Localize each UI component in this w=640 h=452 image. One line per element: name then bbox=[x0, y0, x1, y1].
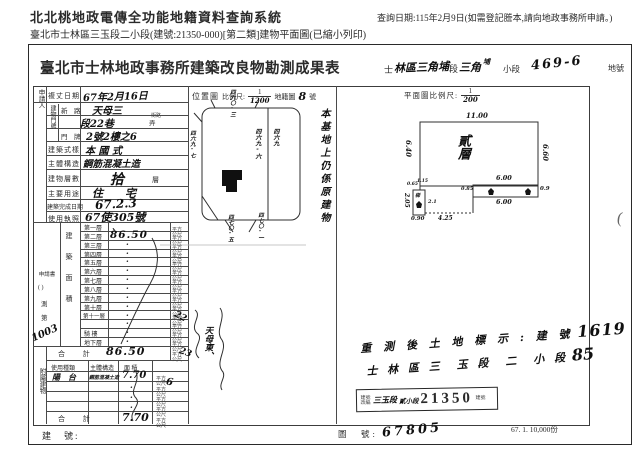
dim-strip-top: 6.00 bbox=[496, 174, 512, 182]
document-viewer-page: 北北桃地政電傳全功能地籍資料查詢系統 查詢日期:115年2月9日(如需登記謄本,… bbox=[0, 0, 640, 452]
dim-balcony-height: 2.05 bbox=[403, 193, 410, 213]
dim-strip-left: 0.85 bbox=[461, 186, 473, 192]
resurvey-lot-no: 85 bbox=[571, 344, 595, 365]
dim-strip-right: 0.9 bbox=[540, 186, 550, 192]
floor-plan-floor-label: 貳層 bbox=[453, 134, 472, 172]
dim-mid: 2.1 bbox=[428, 199, 437, 205]
dim-dotted: 4.25 bbox=[438, 215, 453, 222]
stamp-suffix: 建號 bbox=[475, 396, 486, 401]
lot-label-bottom-left: 四七〇-五 bbox=[226, 214, 234, 244]
lot-label-top: 四六〇-三 bbox=[228, 89, 236, 117]
scribble-strokes bbox=[170, 300, 245, 400]
print-info: 67. 1. 10,000份 bbox=[511, 424, 558, 435]
lot-label-left: 四六九-七 bbox=[188, 130, 196, 164]
stair-label: 梯 bbox=[415, 192, 420, 199]
stamp-prefix: 建號改編 bbox=[360, 395, 371, 405]
resurvey-building-no: 1619 bbox=[577, 319, 627, 341]
stamp-subsection: 貳小段 bbox=[399, 395, 419, 405]
stamp-number: 21350 bbox=[420, 390, 473, 408]
building-number-stamp: 建號改編 三玉段 貳小段 21350 建號 bbox=[356, 387, 498, 412]
dim-balcony-width: 0.90 bbox=[411, 216, 424, 222]
subject-building-footprint bbox=[222, 170, 242, 192]
plan-scale-label: 平面圖比例尺: bbox=[404, 90, 458, 101]
building-no-label: 建 號: bbox=[42, 429, 80, 442]
map-no-label: 圖 號: bbox=[338, 428, 378, 440]
lot-label-center: 四六九-六 bbox=[253, 128, 262, 166]
dim-left: 6.40 bbox=[404, 140, 413, 166]
dim-strip-bottom: 6.00 bbox=[496, 198, 512, 206]
site-side-note: 本基地上仍係原建物 bbox=[316, 108, 331, 240]
dim-top: 11.00 bbox=[466, 111, 488, 120]
plan-scale-fraction: 1 200 bbox=[461, 88, 480, 103]
lot-label-right: 四六九 bbox=[271, 128, 280, 154]
stamp-section: 三玉段 bbox=[373, 395, 397, 406]
dim-right: 6.60 bbox=[541, 144, 550, 170]
floor-plan-header: 平面圖比例尺: 1 200 bbox=[404, 88, 480, 103]
lot-label-bottom-right: 四七〇-一 bbox=[256, 212, 264, 242]
dim-t2: 1.15 bbox=[417, 179, 428, 184]
